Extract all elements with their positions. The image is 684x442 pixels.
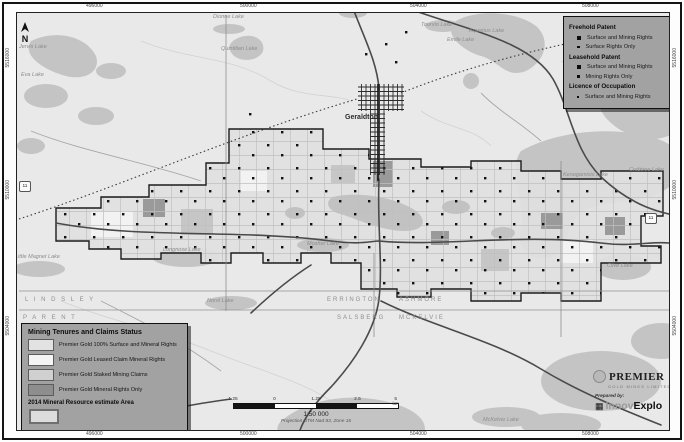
coord-label: 508000 [582, 4, 599, 9]
scale-projection: Projection UTM Nad 83, Zone 16 [233, 419, 399, 424]
coord-label: 500000 [240, 4, 257, 9]
legend-item: Premier Gold 100% Surface and Mineral Ri… [28, 339, 182, 351]
swatch-mineral-rights-only [28, 384, 54, 396]
premier-wordmark: PREMIER [609, 371, 664, 383]
swatch-100-surface-mineral [28, 339, 54, 351]
swatch-leased-claim [28, 354, 54, 366]
credits-block: PREMIER GOLD MINES LIMITED Prepared by: … [593, 370, 670, 412]
coord-label: 504000 [410, 432, 427, 437]
tenure-section-title: Licence of Occupation [569, 83, 670, 90]
square-md-icon [577, 36, 581, 40]
legend-item: Mining Rights Only [577, 74, 670, 80]
legend-item-label: Premier Gold Leased Claim Mineral Rights [59, 357, 165, 363]
scale-bar [233, 403, 399, 409]
north-arrow: N [18, 21, 32, 47]
square-sm-icon [577, 46, 580, 49]
prepared-by-label: Prepared by: [595, 394, 670, 399]
square-sm-icon [577, 75, 580, 78]
scale-tick: 2.5 [354, 397, 361, 402]
tenure-legend: Freehold Patent Surface and Mining Right… [563, 16, 670, 109]
legend-item-label: Premier Gold Staked Mining Claims [59, 372, 148, 378]
legend-item-label: Surface and Mining Rights [585, 94, 651, 100]
legend-item: Premier Gold Staked Mining Claims [28, 369, 182, 381]
coord-label: 496000 [86, 4, 103, 9]
premier-subtitle: GOLD MINES LIMITED [608, 384, 670, 389]
coord-label: 496000 [86, 432, 103, 437]
scale-block: 1.25 0 1.25 2.5 5 km 1:50 000 Projection… [233, 397, 399, 424]
legend-item: Premier Gold Leased Claim Mineral Rights [28, 354, 182, 366]
tenure-section-title: Leasehold Patent [569, 54, 670, 61]
coord-label: 5504000 [6, 316, 11, 335]
legend-item: Surface and Mining Rights [577, 35, 670, 41]
legend-item-label: Surface Rights Only [586, 44, 636, 50]
premier-globe-icon [593, 370, 606, 383]
map-sheet: Jervis LakeEva LakeDionne LakeQuintilian… [0, 0, 684, 442]
highway-11-shield-west: 11 [19, 181, 31, 192]
legend-item-label: Surface and Mining Rights [587, 35, 653, 41]
scale-tick: 5 km [392, 397, 398, 407]
scale-ticks: 1.25 0 1.25 2.5 5 km [233, 397, 399, 403]
highway-11-shield-east: 11 [645, 213, 657, 224]
legend-item-label: Surface and Mining Rights [587, 64, 653, 70]
scale-tick: 0 [273, 397, 276, 402]
status-legend: Mining Tenures and Claims Status Premier… [21, 323, 188, 431]
resource-area-label: 2014 Mineral Resource estimate Area [28, 400, 182, 406]
map-area: Jervis LakeEva LakeDionne LakeQuintilian… [16, 12, 670, 431]
status-legend-title: Mining Tenures and Claims Status [28, 329, 182, 336]
resource-area-swatch [29, 409, 59, 424]
innovexplo-grid-icon: ▦ [595, 402, 604, 411]
coord-label: 508000 [582, 432, 599, 437]
legend-item-label: Premier Gold Mineral Rights Only [59, 387, 142, 393]
coord-label: 500000 [240, 432, 257, 437]
legend-item: Premier Gold Mineral Rights Only [28, 384, 182, 396]
scale-tick: 1.25 [311, 397, 320, 402]
coord-label: 5510000 [673, 180, 678, 199]
innovexplo-wordmark-black: Explo [634, 400, 663, 412]
coord-label: 5516000 [6, 48, 11, 67]
scale-ratio: 1:50 000 [233, 411, 399, 418]
innovexplo-wordmark: InnovExplo [606, 400, 663, 412]
legend-item: Surface Rights Only [577, 44, 670, 50]
north-arrow-label: N [22, 34, 29, 44]
innovexplo-wordmark-gray: Innov [606, 400, 634, 412]
scale-tick: 1.25 [228, 397, 237, 402]
dot-icon [577, 96, 579, 98]
coord-label: 504000 [410, 4, 427, 9]
square-md-icon [577, 65, 581, 69]
legend-item: Surface and Mining Rights [577, 64, 670, 70]
coord-label: 5504000 [673, 316, 678, 335]
innovexplo-logo: ▦ InnovExplo [595, 400, 670, 412]
tenure-section-title: Freehold Patent [569, 24, 670, 31]
coord-label: 5510000 [6, 180, 11, 199]
legend-item: Surface and Mining Rights [577, 94, 670, 100]
premier-logo: PREMIER [593, 370, 670, 383]
legend-item-label: Mining Rights Only [586, 74, 633, 80]
coord-label: 5516000 [673, 48, 678, 67]
legend-item-label: Premier Gold 100% Surface and Mineral Ri… [59, 342, 177, 348]
swatch-staked-claims [28, 369, 54, 381]
